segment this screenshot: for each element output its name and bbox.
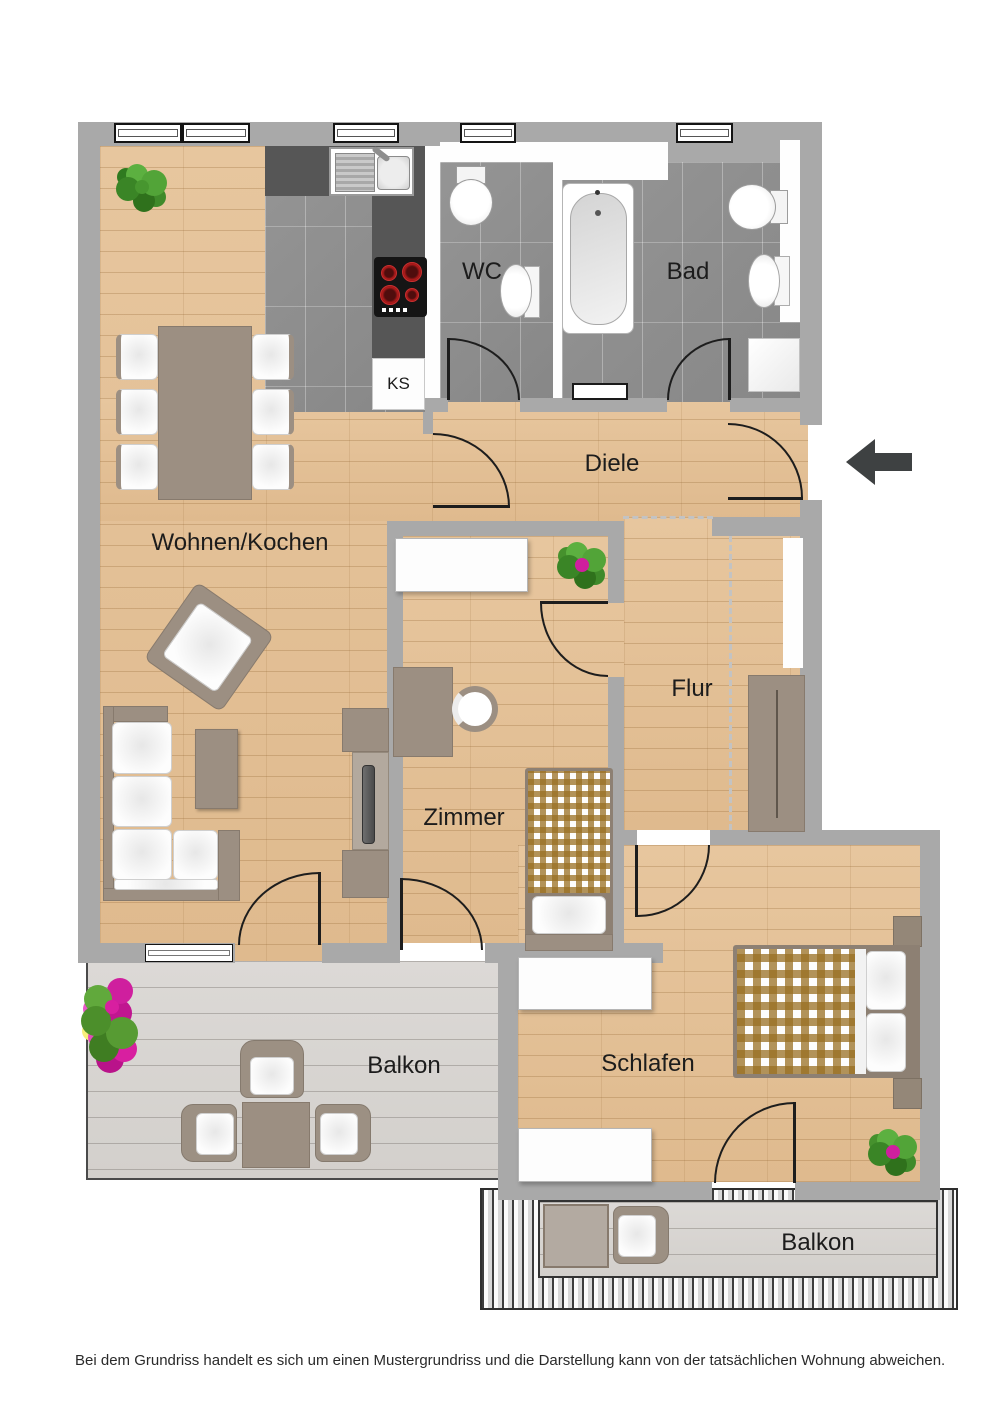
wardrobe-handle-line [776,690,778,818]
bad-toilet-bowl [728,184,776,230]
room-label-balkon-left: Balkon [367,1052,440,1080]
tv-unit-bottom [342,850,389,898]
door-leaf [318,872,321,945]
zimmer-bed-pillow [532,896,606,934]
wall-wc-bad [553,142,562,402]
stove-burner [380,285,400,305]
bed-headboard [906,945,920,1078]
nightstand [893,1078,922,1109]
dining-chair [116,389,158,435]
dining-chair [252,389,294,435]
flur-dashed-line [729,536,732,830]
wall-diele-bottom [389,521,624,536]
door-leaf [728,338,731,400]
room-label-balkon-right: Balkon [781,1229,854,1257]
dining-chair [252,334,294,380]
wall-schlafen-bottom-left [498,1182,712,1200]
bath-mat [572,383,628,400]
stove-knobs [382,308,408,312]
balcony-armchair-cushion [250,1057,294,1095]
wall-bottom-b [322,943,400,963]
nightstand [893,916,922,947]
room-label-schlafen: Schlafen [601,1050,694,1078]
bad-sink [748,254,780,308]
plant-icon [105,1000,119,1014]
window [182,123,250,143]
plant-icon [135,180,149,194]
schlafen-wardrobe [518,1128,652,1182]
bathtub-drain-icon [595,190,600,195]
plant-icon [575,558,589,572]
niche-wc-top [440,142,553,162]
sofa-cushion [112,722,172,774]
coffee-table [195,729,238,809]
wc-sink [500,264,532,318]
double-bed-blanket [737,949,855,1074]
sofa-frame-corner [218,830,240,901]
window-pane [186,129,246,137]
wall-schlafen-left [498,958,518,1200]
stove-burner [381,265,397,281]
wall-right-upper [800,122,822,425]
balcony2-table [543,1204,609,1268]
balcony2-chair [613,1206,669,1264]
zimmer-bed-blanket [528,771,610,893]
sofa-cushion [112,829,172,880]
zimmer-sideboard [395,538,528,592]
armchair-cushion [162,601,254,693]
stove-burner [405,288,419,302]
bathtub-faucet-icon [595,210,601,216]
passage-dashed-line [623,516,713,519]
wall-schlafen-right [920,830,940,1200]
floorplan-canvas: KS [0,0,1000,1415]
niche-bath-top [562,142,668,180]
kitchen-sink [329,147,414,196]
window-balcony [145,944,233,962]
sofa-cushion [173,830,218,880]
balcony-chair-cushion [196,1113,234,1155]
window-pane [337,129,395,137]
wall-bath-bottom-1 [425,398,448,412]
wall-bath-bottom-2 [520,398,667,412]
balcony2-chair-cushion [618,1215,656,1257]
entrance-arrow-icon [846,437,912,487]
bed-pillow [866,1013,906,1072]
wall-kitchen-wc [425,146,440,412]
room-label-flur: Flur [671,675,712,703]
fridge-box: KS [372,358,425,410]
double-bed-sheet [855,949,866,1074]
room-label-bad: Bad [667,258,710,286]
tv-unit-top [342,708,389,752]
window-pane [148,950,230,956]
balcony-chair [315,1104,371,1162]
disclaimer-text: Bei dem Grundriss handelt es sich um ein… [75,1352,985,1369]
door-leaf [540,601,608,604]
wall-schlafen-bottom-right [795,1182,928,1200]
kitchen-stove [374,257,427,317]
plant-icon [886,1145,900,1159]
wall-zimmer-flur-upper [608,536,624,603]
zimmer-desk [393,667,453,757]
bathtub [562,183,634,334]
dining-chair [116,444,158,490]
zimmer-bed-footboard [525,934,613,951]
room-label-wohnen-kochen: Wohnen/Kochen [151,529,328,557]
wall-stub-diele [423,412,433,434]
room-label-zimmer: Zimmer [423,804,504,832]
sink-basin [377,156,410,190]
wc-toilet-bowl [449,179,493,226]
sofa-cushion [112,776,172,827]
door-leaf [400,878,403,950]
stove-burner [402,262,422,282]
room-label-diele: Diele [585,450,640,478]
sofa-armrest [114,879,218,890]
wall-schlafen-top [710,830,940,845]
tv-screen [362,765,375,844]
dining-chair [116,334,158,380]
window [460,123,516,143]
wall-bath-bottom-3 [730,398,800,412]
fridge-label: KS [387,374,410,394]
bad-shower-washer [748,338,800,392]
window-pane [680,129,729,137]
balcony-armchair [240,1040,304,1098]
balcony-chair-cushion [320,1113,358,1155]
window [676,123,733,143]
window [333,123,399,143]
dining-chair [252,444,294,490]
schlafen-wardrobe [518,957,652,1010]
balcony-table [242,1102,310,1168]
bed-pillow [866,951,906,1010]
window-pane [464,129,512,137]
wall-flur-top [712,517,805,536]
wall-flur-bottom-left [624,830,637,845]
door-leaf [793,1102,796,1183]
door-leaf [433,505,510,508]
door-leaf [728,497,803,500]
door-leaf [447,338,450,400]
zimmer-desk-chair [452,686,498,732]
window [114,123,182,143]
room-label-wc: WC [462,258,502,286]
flur-wardrobe [748,675,805,832]
wall-left [78,146,100,963]
sink-drainer [335,153,375,192]
balcony-chair [181,1104,237,1162]
niche-flur-right-window [783,538,803,668]
window-pane [118,129,178,137]
door-leaf [635,845,638,917]
dining-table [158,326,252,500]
